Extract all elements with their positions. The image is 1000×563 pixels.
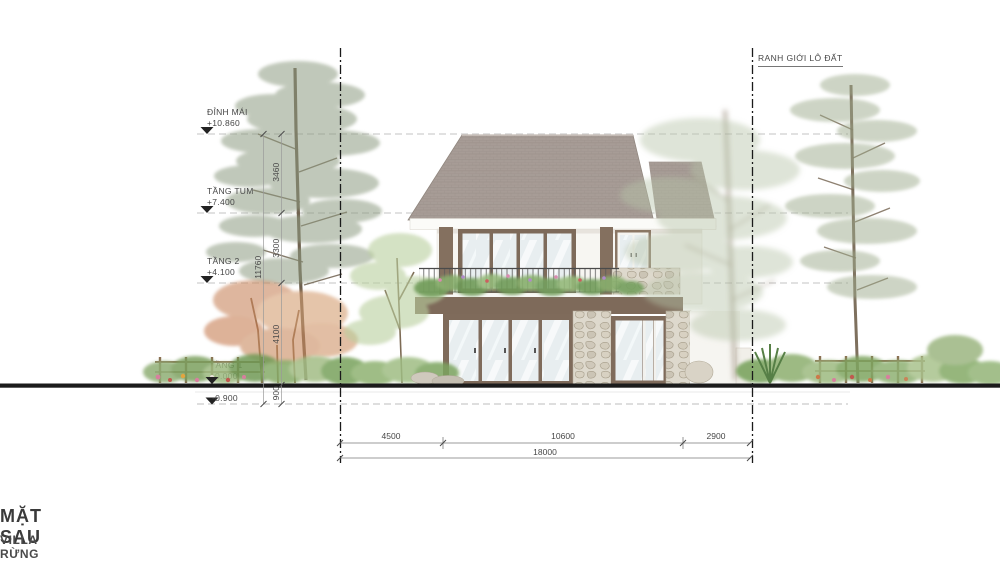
vdim-total-11760: 11760: [253, 240, 264, 294]
elevation-drawing-sheet: TẦNG 1 ±0.000: [0, 0, 1000, 563]
vdim-3300: 3300: [271, 221, 282, 275]
level-elevation: +10.860: [207, 118, 248, 129]
level-name: ĐỈNH MÁI: [207, 107, 248, 118]
glass-door-ground-right: [611, 316, 667, 384]
vdim-4100: 4100: [271, 307, 282, 361]
ground-line: [0, 384, 1000, 388]
level-name: TẦNG 2: [207, 256, 240, 267]
stone-pillar-ground: [573, 311, 611, 385]
hdim-4500: 4500: [361, 431, 421, 442]
elevation-graphics: [0, 0, 1000, 563]
hdim-10600: 10600: [533, 431, 593, 442]
level-name: TẦNG TUM: [207, 186, 254, 197]
hdim-2900: 2900: [686, 431, 746, 442]
balcony-fascia: [415, 297, 683, 314]
level-label-tang-tum: TẦNG TUM +7.400: [207, 186, 254, 207]
hdim-total-18000: 18000: [515, 447, 575, 458]
level-elevation: +7.400: [207, 197, 254, 208]
level-label-datum: -0.900: [212, 393, 238, 404]
level-elevation: +4.100: [207, 267, 240, 278]
roof-main: [408, 135, 655, 226]
level-label-tang-2: TẦNG 2 +4.100: [207, 256, 240, 277]
lot-boundary-label-right: RANH GIỚI LÔ ĐẤT: [758, 53, 843, 67]
shrubs-left: [143, 354, 459, 385]
vdim-3460: 3460: [271, 145, 282, 199]
tree-pine-right: [785, 74, 920, 383]
level-label-dinh-mai: ĐỈNH MÁI +10.860: [207, 107, 248, 128]
glass-door-ground-left: [443, 314, 575, 384]
vdim-900: 900: [271, 366, 282, 420]
